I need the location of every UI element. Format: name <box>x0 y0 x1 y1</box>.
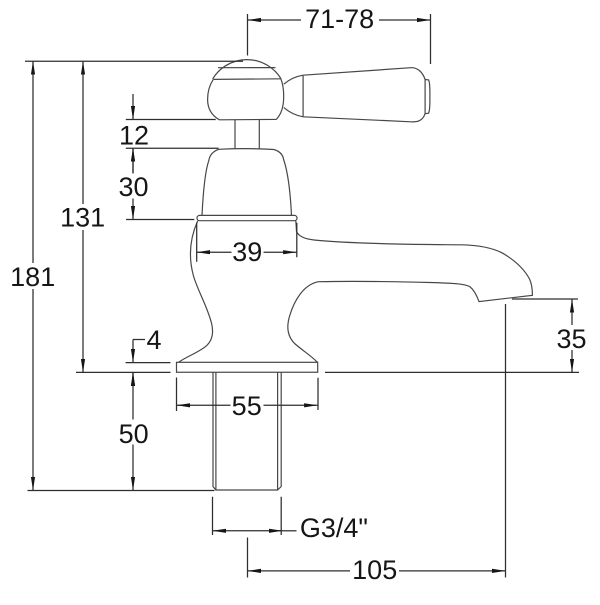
svg-text:4: 4 <box>146 325 161 355</box>
svg-text:105: 105 <box>352 555 397 585</box>
svg-text:35: 35 <box>556 324 586 354</box>
svg-text:181: 181 <box>10 262 55 292</box>
svg-text:12: 12 <box>119 120 149 150</box>
svg-text:30: 30 <box>118 172 148 202</box>
svg-text:50: 50 <box>119 419 149 449</box>
svg-text:131: 131 <box>60 203 105 233</box>
svg-text:G3/4": G3/4" <box>300 513 368 543</box>
svg-text:39: 39 <box>232 237 262 267</box>
svg-text:55: 55 <box>232 391 262 421</box>
svg-text:71-78: 71-78 <box>305 4 374 34</box>
